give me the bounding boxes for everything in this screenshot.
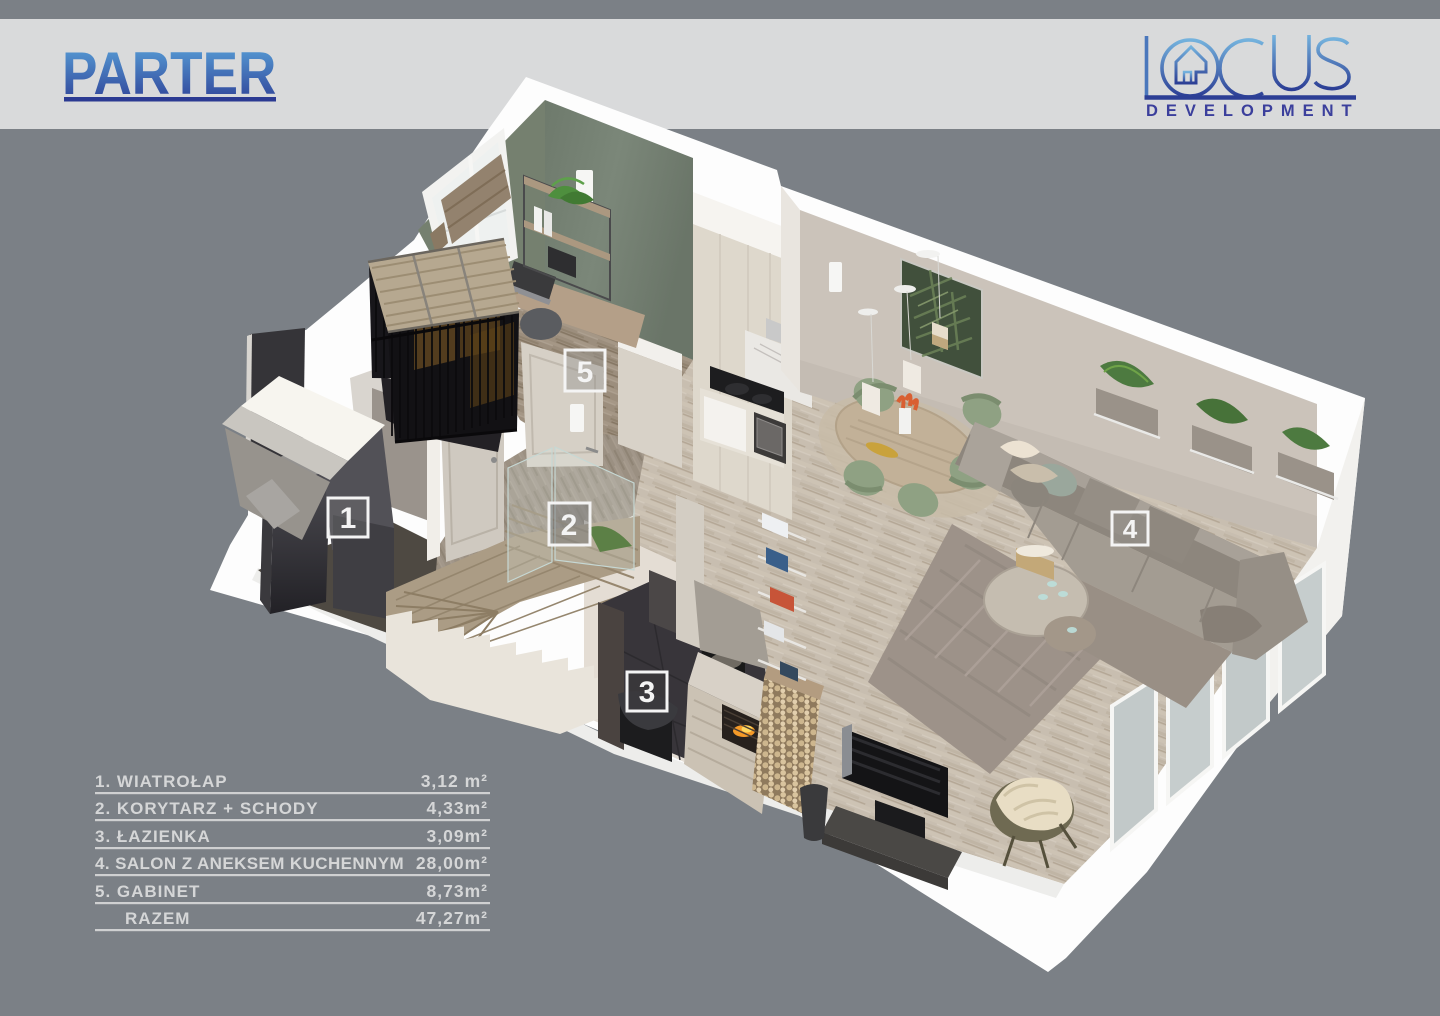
svg-text:4: 4 (1123, 514, 1138, 544)
svg-text:4. SALON Z ANEKSEM KUCHENNYM: 4. SALON Z ANEKSEM KUCHENNYM (95, 854, 404, 873)
svg-text:RAZEM: RAZEM (125, 909, 190, 928)
svg-text:2. KORYTARZ + SCHODY: 2. KORYTARZ + SCHODY (95, 799, 319, 818)
svg-text:1: 1 (340, 502, 357, 535)
svg-text:2: 2 (561, 509, 578, 542)
svg-text:4,33m²: 4,33m² (427, 798, 488, 818)
svg-text:1. WIATROŁAP: 1. WIATROŁAP (95, 772, 228, 791)
svg-text:3,09m²: 3,09m² (427, 826, 488, 846)
svg-text:5. GABINET: 5. GABINET (95, 882, 200, 901)
svg-text:47,27m²: 47,27m² (416, 908, 488, 928)
svg-text:8,73m²: 8,73m² (427, 881, 488, 901)
svg-text:3: 3 (639, 676, 656, 709)
svg-text:28,00m²: 28,00m² (416, 853, 488, 873)
svg-text:3,12 m²: 3,12 m² (421, 771, 488, 791)
svg-text:5: 5 (577, 356, 594, 389)
svg-text:DEVELOPMENT: DEVELOPMENT (1146, 102, 1360, 120)
svg-text:3. ŁAZIENKA: 3. ŁAZIENKA (95, 827, 211, 846)
